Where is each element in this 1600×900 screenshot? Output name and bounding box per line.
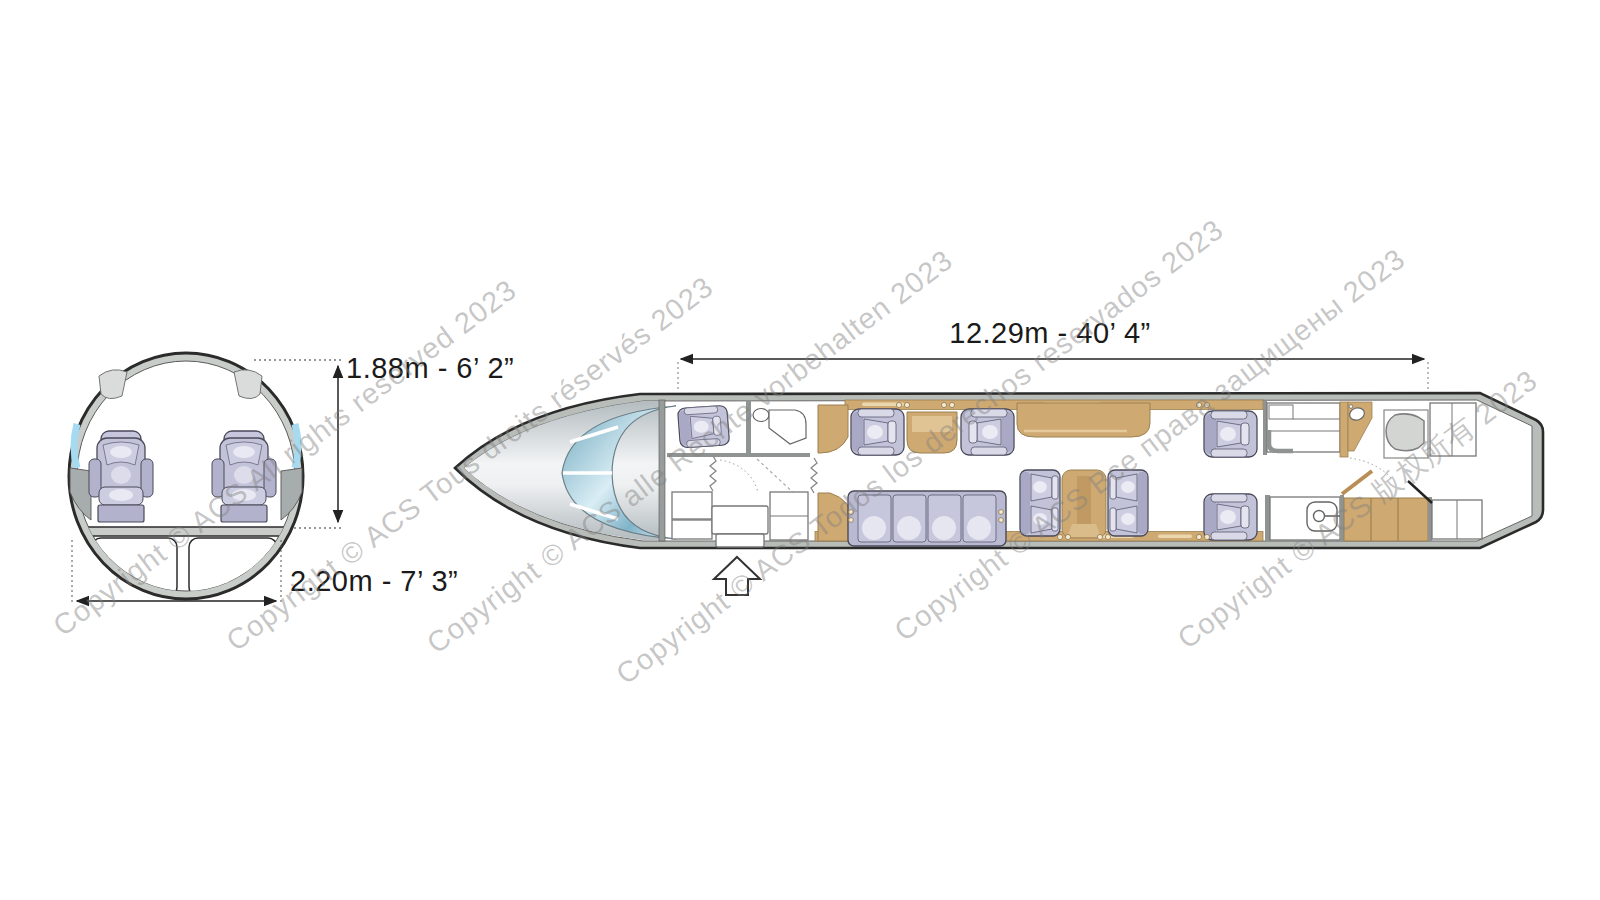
entry-door-arrow-icon	[714, 557, 760, 595]
aft-cabinet	[1267, 403, 1340, 452]
club-seat-forward-facing-fwd	[961, 409, 1014, 455]
cross-section-seat-right	[212, 431, 276, 522]
lav-faucet	[1349, 405, 1353, 409]
conference-seats-facing-fwd	[1108, 470, 1148, 536]
side-table-top	[912, 416, 952, 432]
aft-seat-top	[1204, 411, 1257, 457]
club-seat-forward-facing-aft	[851, 409, 904, 455]
cabin-length-dimension	[678, 359, 1428, 391]
overhead-panel-left	[99, 370, 127, 399]
cabin-length-label: 12.29m - 40’ 4”	[940, 317, 1160, 350]
conference-table	[1062, 470, 1106, 538]
cross-section-seat-left	[89, 431, 153, 522]
divan	[848, 491, 1006, 546]
cabin-height-label: 1.88m - 6’ 2”	[346, 352, 514, 385]
aft-wall	[1340, 495, 1344, 541]
cockpit-bulkhead	[659, 400, 665, 541]
aft-counter-top	[1430, 403, 1476, 456]
galley-sink	[753, 409, 769, 422]
ledge-slot	[1158, 535, 1192, 539]
aft-partition-bottom	[1265, 495, 1270, 541]
entry-airstair	[716, 534, 764, 547]
floor-plan	[455, 359, 1543, 595]
entry-door	[712, 506, 768, 534]
galley-cabinet	[672, 520, 712, 539]
vestibule-wall	[751, 453, 810, 457]
galley-wall	[746, 400, 751, 455]
lav-wall	[1340, 402, 1348, 457]
galley-cabinet	[672, 492, 712, 519]
diagram-canvas	[0, 0, 1600, 900]
window-left	[74, 424, 77, 468]
overhead-panel-right	[234, 370, 262, 399]
aft-seat-bottom	[1204, 494, 1257, 540]
aircraft-cabin-layout-diagram: 1.88m - 6’ 2” 2.20m - 7’ 3” 12.29m - 40’…	[0, 0, 1600, 900]
toilet	[1386, 414, 1424, 451]
aft-tan-cabinets	[1344, 498, 1428, 541]
conference-seats-facing-aft	[1020, 470, 1060, 536]
crew-jump-seat	[677, 405, 729, 448]
vestibule-wall	[667, 453, 751, 457]
cabin-width-label: 2.20m - 7’ 3”	[290, 565, 458, 598]
window-right	[295, 424, 298, 468]
